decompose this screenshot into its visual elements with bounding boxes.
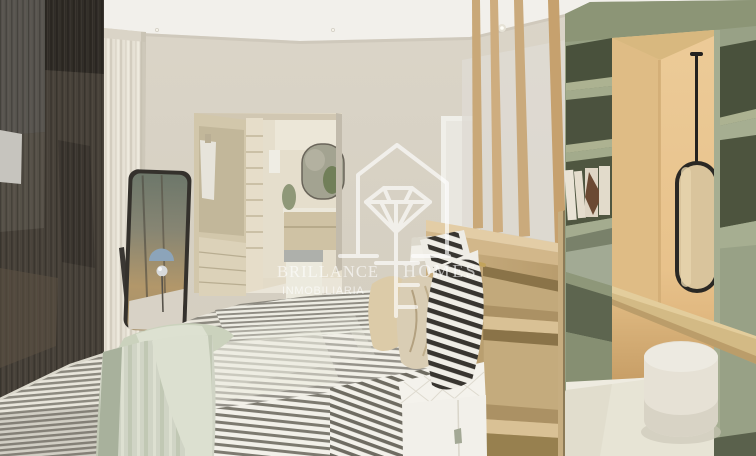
svg-text:HOMES: HOMES [403,261,478,281]
svg-text:BRILLANCE: BRILLANCE [277,262,379,281]
svg-text:INMOBILIARIA: INMOBILIARIA [282,285,364,297]
